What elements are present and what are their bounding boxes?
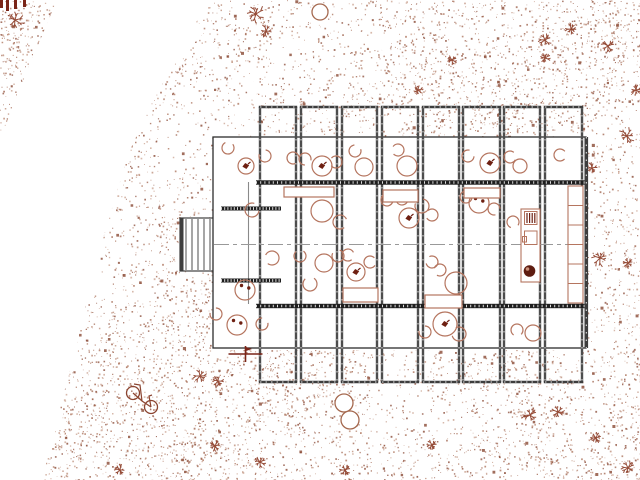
shelving [568, 186, 583, 303]
corner-bar [14, 0, 17, 9]
dock [180, 218, 214, 271]
table-glyph [481, 199, 484, 202]
white-spot [447, 28, 457, 38]
table-glyph [239, 321, 242, 324]
white-spot [297, 79, 309, 91]
tree-icon [335, 394, 353, 412]
rect-table [425, 295, 462, 308]
floorplan-drawing [0, 0, 640, 480]
dock-edge [180, 218, 184, 271]
table-glyph [232, 319, 235, 322]
table-glyph [240, 284, 243, 287]
white-spot [348, 31, 362, 45]
rect-table [343, 288, 378, 302]
white-spot [379, 39, 391, 51]
sink-icon [524, 265, 536, 277]
rect-table [464, 188, 500, 198]
tree-icon [341, 411, 359, 429]
dock-outline [180, 218, 214, 271]
corner-bar [23, 0, 26, 7]
cad-viewport [0, 0, 640, 480]
tree-icon [312, 4, 328, 20]
white-spot [246, 81, 260, 95]
kitchen-unit [521, 209, 540, 282]
corner-bar [0, 0, 3, 8]
rect-table [284, 187, 334, 197]
table-glyph [247, 286, 250, 289]
hatched-wall [221, 207, 281, 211]
rect-table [383, 190, 418, 202]
corner-bar [6, 0, 9, 11]
